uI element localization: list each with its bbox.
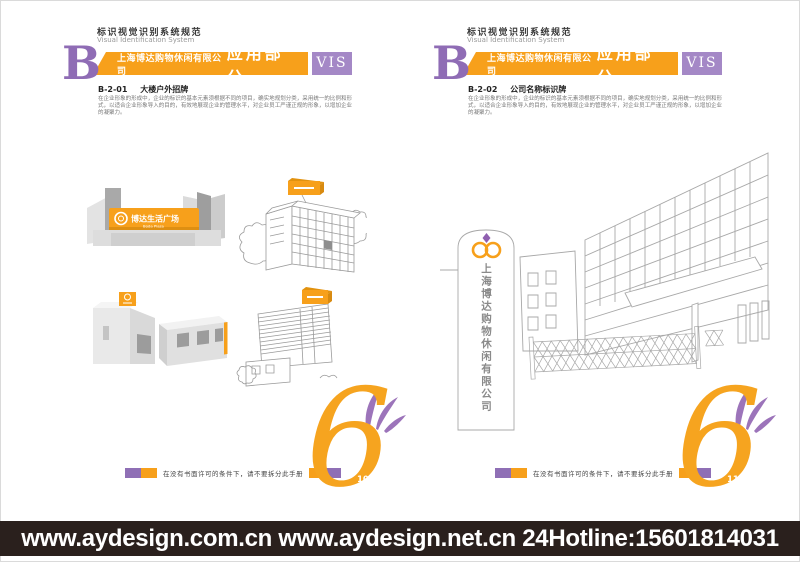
item-title: 大楼户外招牌 bbox=[140, 85, 188, 94]
section-index-letter: B bbox=[62, 40, 101, 86]
company-name: 上海博达购物休闲有限公司 bbox=[117, 51, 227, 77]
pillar-sign-text: 上海博达购物休闲有限公司 bbox=[479, 263, 494, 421]
roof-sign bbox=[302, 287, 332, 304]
vis-badge: VIS bbox=[312, 52, 352, 75]
small-roof-sign bbox=[119, 292, 136, 306]
item-heading: B-2-02 公司名称标识牌 bbox=[468, 84, 566, 95]
copyright-note: 在没有书面许可的条件下，请不要拆分此手册 bbox=[533, 468, 673, 478]
plaza-sign: 博达生活广场 Boda Plaza bbox=[109, 208, 199, 230]
contact-bar: www.aydesign.com.cn www.aydesign.net.cn … bbox=[0, 521, 800, 556]
item-heading: B-2-01 大楼户外招牌 bbox=[98, 84, 188, 95]
system-title-en: Visual Identification System bbox=[97, 36, 194, 44]
item-description: 在企业形象的形成中，企业的标识的基本元素须根据不同的项目，确实地规划分类，采用统… bbox=[468, 96, 722, 117]
chapter-numeral-graphic: 6 10 bbox=[308, 385, 413, 513]
chapter-numeral-graphic: 6 11 bbox=[678, 385, 783, 513]
page-number: 10 bbox=[357, 475, 369, 485]
section-index-letter: B bbox=[432, 40, 471, 86]
system-title-en: Visual Identification System bbox=[467, 36, 564, 44]
page-number: 11 bbox=[727, 475, 739, 485]
orange-square bbox=[141, 468, 157, 478]
orange-square bbox=[511, 468, 527, 478]
vertical-sign-strip bbox=[224, 322, 228, 355]
item-description: 在企业形象的形成中，企业的标识的基本元素须根据不同的项目，确实地规划分类，采用统… bbox=[98, 96, 352, 117]
plaza-sign-text-en: Boda Plaza bbox=[143, 224, 164, 229]
company-name: 上海博达购物休闲有限公司 bbox=[487, 51, 597, 77]
plaza-storefront-illustration: 博达生活广场 Boda Plaza bbox=[85, 178, 230, 270]
numeral-six: 6 bbox=[676, 371, 762, 506]
section-label: 应用部分 bbox=[597, 40, 670, 88]
contact-bar-text: www.aydesign.com.cn www.aydesign.net.cn … bbox=[21, 525, 779, 553]
flat-buildings-illustration bbox=[85, 278, 233, 370]
purple-square bbox=[125, 468, 141, 478]
vis-manual-spread: 标识视觉识别系统规范 Visual Identification System … bbox=[0, 0, 800, 562]
manual-page-right: 标识视觉识别系统规范 Visual Identification System … bbox=[430, 0, 800, 521]
section-label: 应用部分 bbox=[227, 40, 300, 88]
roof-sign bbox=[288, 178, 324, 195]
header-bar: 上海博达购物休闲有限公司 应用部分 bbox=[463, 52, 678, 75]
sketch-building-illustration-1 bbox=[232, 168, 367, 290]
purple-square bbox=[495, 468, 511, 478]
manual-page-left: 标识视觉识别系统规范 Visual Identification System … bbox=[60, 0, 430, 521]
item-code: B-2-01 bbox=[98, 85, 127, 94]
header-bar: 上海博达购物休闲有限公司 应用部分 bbox=[93, 52, 308, 75]
plaza-sign-text-cn: 博达生活广场 bbox=[131, 214, 179, 224]
numeral-six: 6 bbox=[306, 371, 392, 506]
copyright-note: 在没有书面许可的条件下，请不要拆分此手册 bbox=[163, 468, 303, 478]
vis-badge: VIS bbox=[682, 52, 722, 75]
item-title: 公司名称标识牌 bbox=[510, 85, 566, 94]
item-code: B-2-02 bbox=[468, 85, 497, 94]
